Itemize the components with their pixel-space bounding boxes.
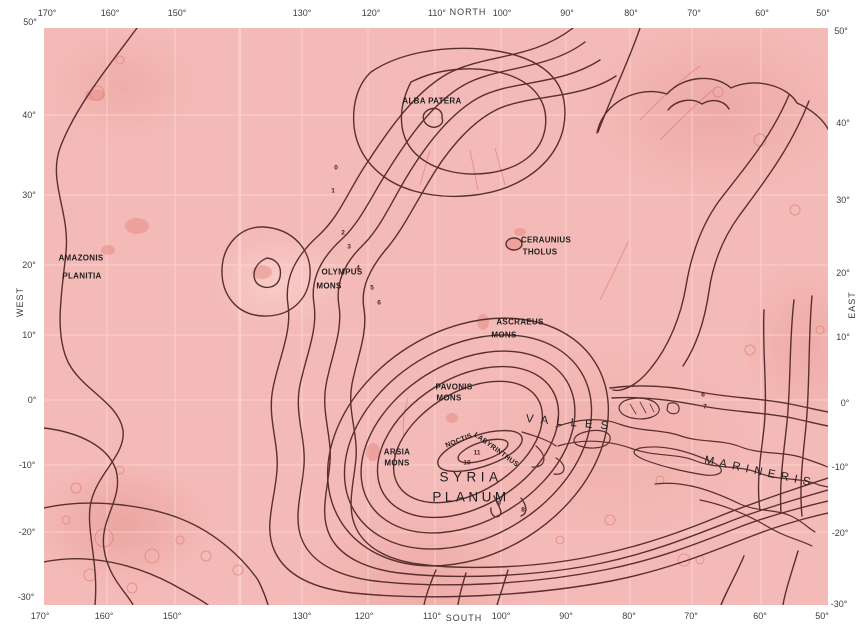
lon-tick: 50° — [815, 611, 829, 621]
north-label: NORTH — [450, 7, 487, 17]
lon-tick: 60° — [755, 8, 769, 18]
lon-tick: 130° — [293, 8, 312, 18]
lon-tick: 150° — [163, 611, 182, 621]
lon-tick: 170° — [38, 8, 57, 18]
lat-tick: -20° — [832, 528, 849, 538]
lat-tick: 20° — [836, 268, 850, 278]
lon-tick: 150° — [168, 8, 187, 18]
lat-tick: 10° — [22, 330, 36, 340]
lon-tick: 90° — [560, 8, 574, 18]
lat-tick: 40° — [836, 118, 850, 128]
lat-tick: 0° — [28, 395, 37, 405]
lon-tick: 120° — [362, 8, 381, 18]
map-surface — [44, 28, 828, 605]
lat-tick: 50° — [834, 26, 848, 36]
mars-contour-map-page: 170°160°150°130°120°110°NORTH100°90°80°7… — [0, 0, 860, 632]
lat-tick: -30° — [18, 592, 35, 602]
lat-tick: 40° — [22, 110, 36, 120]
lon-tick: 80° — [624, 8, 638, 18]
east-label: EAST — [847, 291, 857, 319]
lon-tick: 130° — [293, 611, 312, 621]
lon-tick: 70° — [684, 611, 698, 621]
lon-tick: 90° — [559, 611, 573, 621]
lon-tick: 100° — [493, 8, 512, 18]
lat-tick: -10° — [832, 462, 849, 472]
lon-tick: 170° — [31, 611, 50, 621]
west-label: WEST — [15, 287, 25, 317]
lat-tick: 50° — [23, 17, 37, 27]
lat-tick: 20° — [22, 260, 36, 270]
south-label: SOUTH — [446, 613, 483, 623]
lat-tick: 10° — [836, 332, 850, 342]
lat-tick: -10° — [19, 460, 36, 470]
lon-tick: 70° — [687, 8, 701, 18]
lat-tick: -20° — [19, 527, 36, 537]
lat-tick: 0° — [841, 398, 850, 408]
lon-tick: 80° — [622, 611, 636, 621]
lon-tick: 110° — [423, 611, 441, 621]
lon-tick: 50° — [816, 8, 830, 18]
lon-tick: 120° — [355, 611, 374, 621]
lon-tick: 160° — [101, 8, 120, 18]
lat-tick: 30° — [836, 195, 850, 205]
lon-tick: 160° — [95, 611, 114, 621]
lon-tick: 100° — [492, 611, 511, 621]
lon-tick: 60° — [753, 611, 767, 621]
lat-tick: -30° — [831, 599, 848, 609]
lon-tick: 110° — [428, 8, 446, 18]
lat-tick: 30° — [22, 190, 36, 200]
